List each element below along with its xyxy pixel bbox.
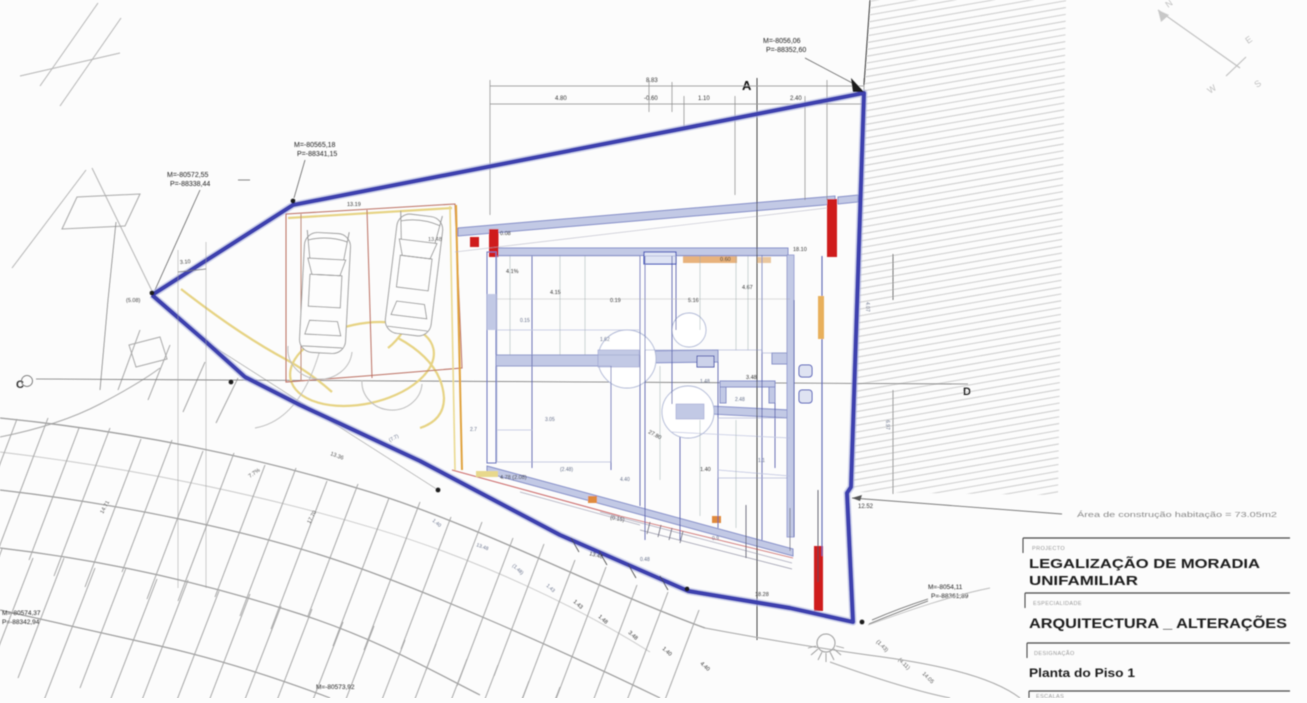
svg-text:(5.08): (5.08) — [126, 298, 141, 304]
svg-text:13.48: 13.48 — [475, 542, 489, 552]
svg-text:DESIGNAÇÃO: DESIGNAÇÃO — [1034, 650, 1075, 657]
svg-text:P=-88338,44: P=-88338,44 — [170, 181, 210, 188]
svg-text:18.10: 18.10 — [793, 247, 807, 253]
svg-text:14.05: 14.05 — [921, 671, 935, 685]
svg-text:ESCALAS: ESCALAS — [1036, 694, 1064, 698]
svg-text:1.40: 1.40 — [661, 646, 673, 658]
svg-text:(1.48): (1.48) — [511, 563, 525, 576]
svg-text:P=-88352,60: P=-88352,60 — [766, 47, 806, 54]
svg-text:ESPECIALIDADE: ESPECIALIDADE — [1033, 601, 1082, 607]
svg-text:3.48: 3.48 — [627, 630, 639, 642]
svg-text:1.40: 1.40 — [431, 518, 442, 529]
svg-text:N: N — [1163, 0, 1174, 10]
svg-text:1.48: 1.48 — [700, 379, 710, 385]
svg-text:(0.15): (0.15) — [610, 515, 625, 523]
svg-text:Planta do Piso 1: Planta do Piso 1 — [1029, 668, 1136, 680]
svg-text:4.15: 4.15 — [550, 290, 561, 296]
svg-text:3.10: 3.10 — [180, 259, 191, 266]
svg-text:2.7: 2.7 — [470, 427, 477, 433]
svg-text:1.1: 1.1 — [758, 458, 765, 464]
svg-text:E: E — [1243, 34, 1254, 46]
svg-text:4.40: 4.40 — [620, 477, 630, 483]
svg-text:LEGALIZAÇÃO DE MORADIA: LEGALIZAÇÃO DE MORADIA — [1029, 556, 1261, 571]
svg-text:2.48: 2.48 — [735, 397, 745, 403]
svg-text:18.28: 18.28 — [755, 592, 769, 598]
svg-text:1.43: 1.43 — [545, 583, 556, 594]
svg-text:4.1%: 4.1% — [506, 269, 519, 275]
svg-text:13.36: 13.36 — [329, 451, 344, 461]
svg-text:D: D — [963, 386, 971, 398]
svg-text:P=-88342,94: P=-88342,94 — [2, 619, 40, 626]
svg-text:14.71: 14.71 — [99, 500, 111, 515]
svg-text:6.97: 6.97 — [884, 420, 890, 430]
svg-text:-0.60: -0.60 — [644, 96, 658, 102]
svg-text:(1.43): (1.43) — [875, 639, 890, 654]
svg-text:4.78 (2.08): 4.78 (2.08) — [500, 475, 527, 481]
svg-text:M=-80572,55: M=-80572,55 — [167, 172, 209, 179]
svg-text:13.19: 13.19 — [347, 202, 361, 208]
svg-text:5.16: 5.16 — [688, 298, 699, 304]
svg-text:0.60: 0.60 — [720, 257, 731, 263]
svg-text:ARQUITECTURA _ ALTERAÇÕES: ARQUITECTURA _ ALTERAÇÕES — [1029, 616, 1287, 631]
svg-text:P=-88341,15: P=-88341,15 — [297, 151, 337, 158]
svg-text:0.9: 0.9 — [712, 536, 719, 542]
svg-text:M=-80573,92: M=-80573,92 — [316, 684, 355, 691]
svg-text:4.07: 4.07 — [864, 302, 870, 312]
svg-text:0.48: 0.48 — [640, 557, 650, 563]
svg-text:0.15: 0.15 — [520, 318, 530, 324]
svg-text:0.08: 0.08 — [500, 231, 511, 237]
svg-text:M=-8056,06: M=-8056,06 — [763, 38, 801, 45]
svg-text:(7.7): (7.7) — [388, 433, 400, 444]
svg-text:(2.48): (2.48) — [560, 467, 573, 473]
svg-text:Área de construção habitação: Área de construção habitação = 73.05m2 — [1077, 510, 1277, 519]
svg-text:17.70: 17.70 — [306, 510, 318, 525]
svg-text:W: W — [1205, 82, 1218, 95]
svg-text:M=-80565,18: M=-80565,18 — [294, 142, 336, 149]
svg-text:0.19: 0.19 — [610, 298, 621, 304]
svg-text:1.40: 1.40 — [700, 467, 711, 473]
svg-text:M=-80574,37: M=-80574,37 — [2, 610, 41, 617]
svg-text:1.10: 1.10 — [698, 96, 710, 102]
svg-text:12.52: 12.52 — [858, 504, 874, 510]
svg-text:4.80: 4.80 — [555, 96, 567, 102]
svg-text:13.48: 13.48 — [428, 237, 442, 243]
svg-text:M=-8054,11: M=-8054,11 — [928, 584, 963, 591]
svg-text:S: S — [1252, 78, 1263, 90]
svg-text:UNIFAMILIAR: UNIFAMILIAR — [1029, 573, 1139, 588]
svg-text:4.67: 4.67 — [742, 285, 753, 291]
svg-text:3.05: 3.05 — [545, 417, 555, 423]
svg-text:4.40: 4.40 — [699, 661, 711, 673]
svg-text:2.40: 2.40 — [790, 96, 802, 102]
svg-text:1.62: 1.62 — [600, 337, 610, 343]
svg-text:7.7%: 7.7% — [248, 467, 262, 479]
svg-text:8.83: 8.83 — [646, 78, 658, 84]
svg-text:PROJECTO: PROJECTO — [1032, 546, 1065, 552]
svg-text:A: A — [742, 78, 752, 93]
svg-text:3.48: 3.48 — [746, 375, 757, 381]
